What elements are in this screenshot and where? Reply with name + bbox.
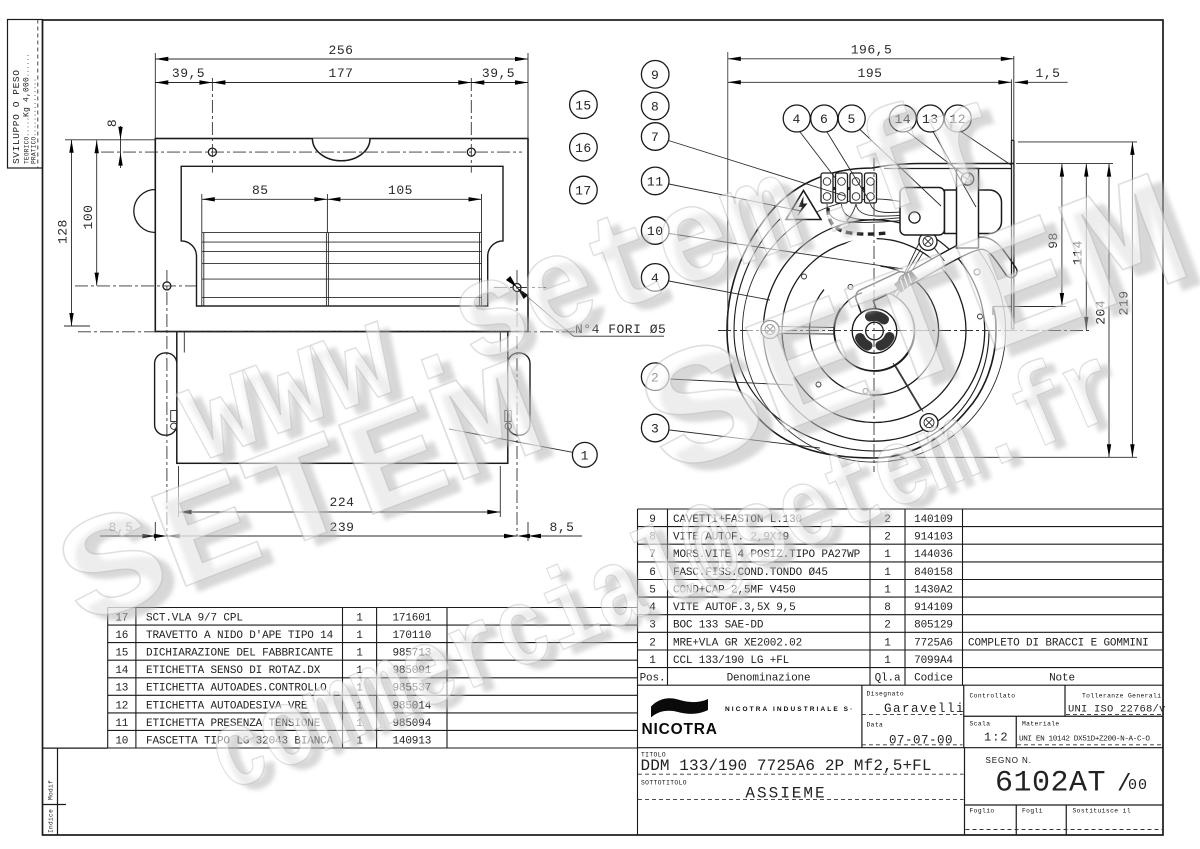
svg-text:ASSIEME: ASSIEME	[745, 785, 826, 803]
svg-text:Modif: Modif	[48, 780, 55, 800]
svg-text:1,5: 1,5	[1036, 66, 1061, 81]
svg-text:1: 1	[884, 567, 891, 579]
svg-text:1: 1	[884, 637, 891, 649]
svg-text:100: 100	[81, 205, 96, 230]
svg-text:11: 11	[115, 718, 128, 730]
svg-text:914109: 914109	[914, 602, 953, 614]
svg-text:144036: 144036	[914, 549, 953, 561]
svg-text:9: 9	[651, 68, 659, 83]
svg-text:15: 15	[575, 98, 592, 113]
svg-text:195: 195	[858, 66, 883, 81]
svg-text:Controllato: Controllato	[970, 693, 1016, 700]
svg-text:1: 1	[581, 449, 589, 464]
svg-text:00: 00	[1128, 777, 1148, 794]
svg-text:6102AT: 6102AT	[995, 767, 1106, 801]
svg-text:7099A4: 7099A4	[914, 655, 953, 667]
svg-text:SEGNO N.: SEGNO N.	[986, 756, 1032, 765]
svg-text:Note: Note	[1049, 673, 1075, 685]
svg-text:256: 256	[329, 43, 354, 58]
svg-text:SVILUPPO O PESO: SVILUPPO O PESO	[11, 69, 22, 164]
svg-text:Fogli: Fogli	[1022, 808, 1043, 815]
svg-text:Pos.: Pos.	[640, 673, 666, 685]
svg-text:13: 13	[115, 683, 128, 695]
svg-text:840158: 840158	[914, 567, 953, 579]
svg-text:8: 8	[651, 100, 659, 115]
svg-text:UNI ISO 22768/v: UNI ISO 22768/v	[1068, 704, 1166, 716]
svg-text:1: 1	[356, 613, 363, 625]
svg-text:NICOTRA: NICOTRA	[642, 721, 718, 738]
svg-text:8,5: 8,5	[550, 520, 575, 535]
svg-text:17: 17	[575, 184, 592, 199]
svg-text:UNI EN 10142 DX51D+Z200-N-A-C-: UNI EN 10142 DX51D+Z200-N-A-C-O	[1019, 736, 1150, 744]
svg-text:SOTTOTITOLO: SOTTOTITOLO	[641, 780, 687, 787]
svg-text:7: 7	[651, 130, 659, 145]
svg-text:Sostituisce il: Sostituisce il	[1073, 808, 1132, 815]
svg-text:COMPLETO DI BRACCI E GOMMINI: COMPLETO DI BRACCI E GOMMINI	[968, 637, 1149, 649]
svg-text:Codice: Codice	[914, 673, 953, 685]
svg-text:805129: 805129	[914, 620, 953, 632]
svg-text:128: 128	[56, 219, 71, 244]
svg-text:Garavelli: Garavelli	[884, 702, 965, 716]
svg-text:Disegnato: Disegnato	[867, 691, 905, 698]
svg-text:2: 2	[884, 620, 890, 632]
svg-text:NICOTRA INDUSTRIALE S·: NICOTRA INDUSTRIALE S·	[725, 706, 854, 713]
svg-text:39,5: 39,5	[172, 66, 205, 81]
svg-text:Denominazione: Denominazione	[727, 673, 811, 685]
svg-text:Indice: Indice	[48, 809, 55, 833]
svg-text:12: 12	[115, 700, 128, 712]
svg-text:Ql.a: Ql.a	[875, 673, 901, 685]
svg-text:177: 177	[329, 66, 354, 81]
svg-text:Tolleranze Generali: Tolleranze Generali	[1082, 693, 1161, 700]
svg-text:8: 8	[884, 602, 890, 614]
svg-text:07-07-00: 07-07-00	[889, 734, 953, 748]
svg-text:DDM 133/190 7725A6 2P Mf2,5+FL: DDM 133/190 7725A6 2P Mf2,5+FL	[641, 757, 932, 775]
svg-text:1:2: 1:2	[984, 731, 1009, 745]
svg-text:105: 105	[388, 183, 413, 198]
svg-text:1: 1	[884, 585, 891, 597]
svg-text:PRATICO...............: PRATICO...............	[31, 78, 38, 164]
svg-text:16: 16	[575, 141, 592, 156]
svg-text:85: 85	[252, 183, 269, 198]
svg-text:1430A2: 1430A2	[914, 585, 953, 597]
svg-text:196,5: 196,5	[851, 43, 893, 58]
svg-text:7725A6: 7725A6	[914, 637, 953, 649]
svg-text:1: 1	[884, 655, 891, 667]
svg-text:Scala: Scala	[970, 721, 991, 728]
svg-text:39,5: 39,5	[482, 66, 515, 81]
svg-text:Foglio: Foglio	[970, 808, 995, 815]
svg-text:10: 10	[115, 735, 128, 747]
svg-text:Materiale: Materiale	[1022, 721, 1060, 728]
svg-text:Data: Data	[867, 722, 884, 729]
svg-text:8: 8	[105, 119, 120, 127]
svg-text:CCL 133/190 LG +FL: CCL 133/190 LG +FL	[673, 655, 789, 667]
